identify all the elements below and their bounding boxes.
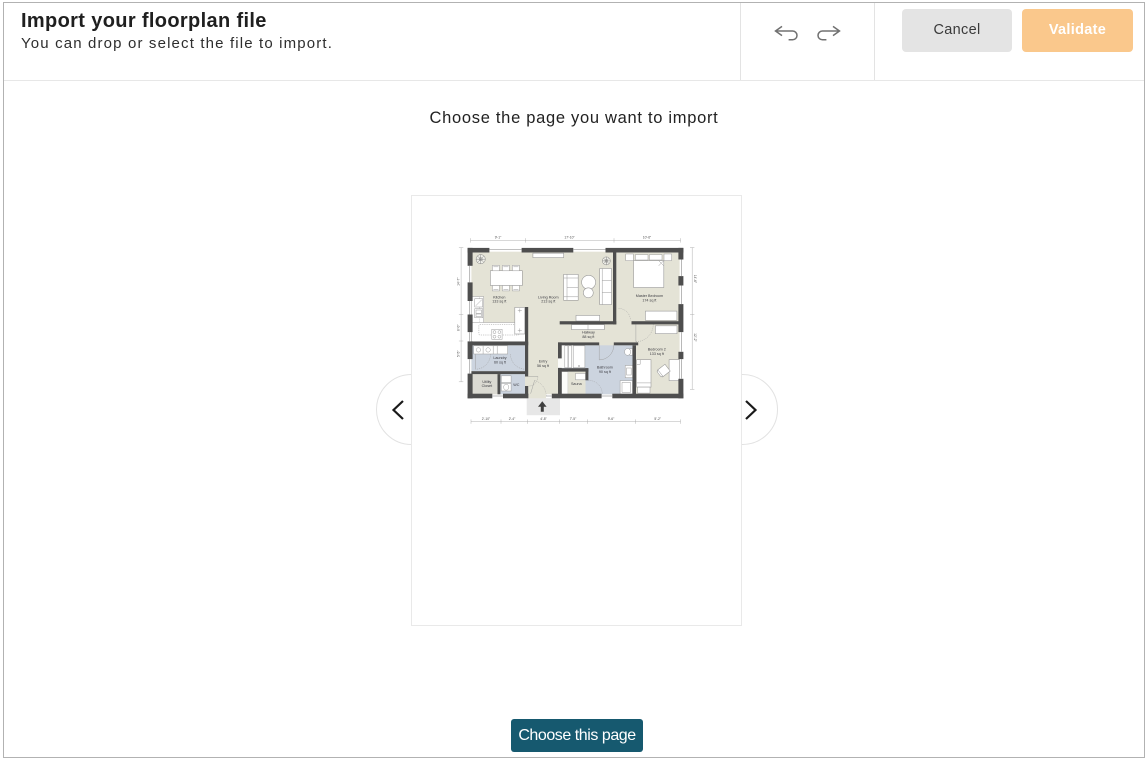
svg-text:174 sq ft: 174 sq ft [642, 298, 656, 302]
svg-text:5'-5": 5'-5" [456, 350, 460, 357]
svg-text:Closet: Closet [482, 384, 492, 388]
svg-text:2'-4": 2'-4" [509, 417, 516, 421]
svg-text:88 sq ft: 88 sq ft [582, 335, 594, 339]
svg-text:14'-7": 14'-7" [456, 277, 460, 286]
svg-text:133 sq ft: 133 sq ft [650, 352, 664, 356]
svg-text:213 sq ft: 213 sq ft [541, 300, 555, 304]
svg-text:12'-2": 12'-2" [693, 333, 697, 342]
svg-text:Living Room: Living Room [538, 295, 559, 299]
svg-text:Laundry: Laundry [493, 356, 506, 360]
svg-text:WC: WC [513, 383, 519, 387]
svg-text:Bathroom: Bathroom [597, 366, 613, 370]
svg-text:4'-8": 4'-8" [540, 417, 547, 421]
svg-text:Utility: Utility [482, 380, 491, 384]
svg-text:9'-1": 9'-1" [495, 235, 502, 239]
svg-text:9'-6": 9'-6" [608, 417, 615, 421]
svg-text:14'-6": 14'-6" [693, 275, 697, 284]
svg-text:56 sq ft: 56 sq ft [537, 364, 549, 368]
svg-text:10'-6": 10'-6" [643, 235, 652, 239]
svg-text:17'-10": 17'-10" [564, 235, 575, 239]
svg-text:Bedroom 2: Bedroom 2 [648, 348, 666, 352]
svg-text:Kitchen: Kitchen [493, 295, 505, 299]
svg-text:7'-5": 7'-5" [570, 417, 577, 421]
svg-text:2'-10": 2'-10" [482, 417, 491, 421]
svg-text:5'-2": 5'-2" [654, 417, 661, 421]
svg-text:Hallway: Hallway [582, 330, 595, 334]
svg-text:90 sq ft: 90 sq ft [599, 370, 611, 374]
svg-text:8'-0": 8'-0" [456, 324, 460, 331]
svg-text:Entry: Entry [539, 360, 548, 364]
svg-text:133 sq ft: 133 sq ft [492, 300, 506, 304]
svg-text:60 sq ft: 60 sq ft [494, 360, 506, 364]
svg-text:Master Bedroom: Master Bedroom [636, 294, 663, 298]
svg-text:Sauna: Sauna [571, 382, 583, 386]
